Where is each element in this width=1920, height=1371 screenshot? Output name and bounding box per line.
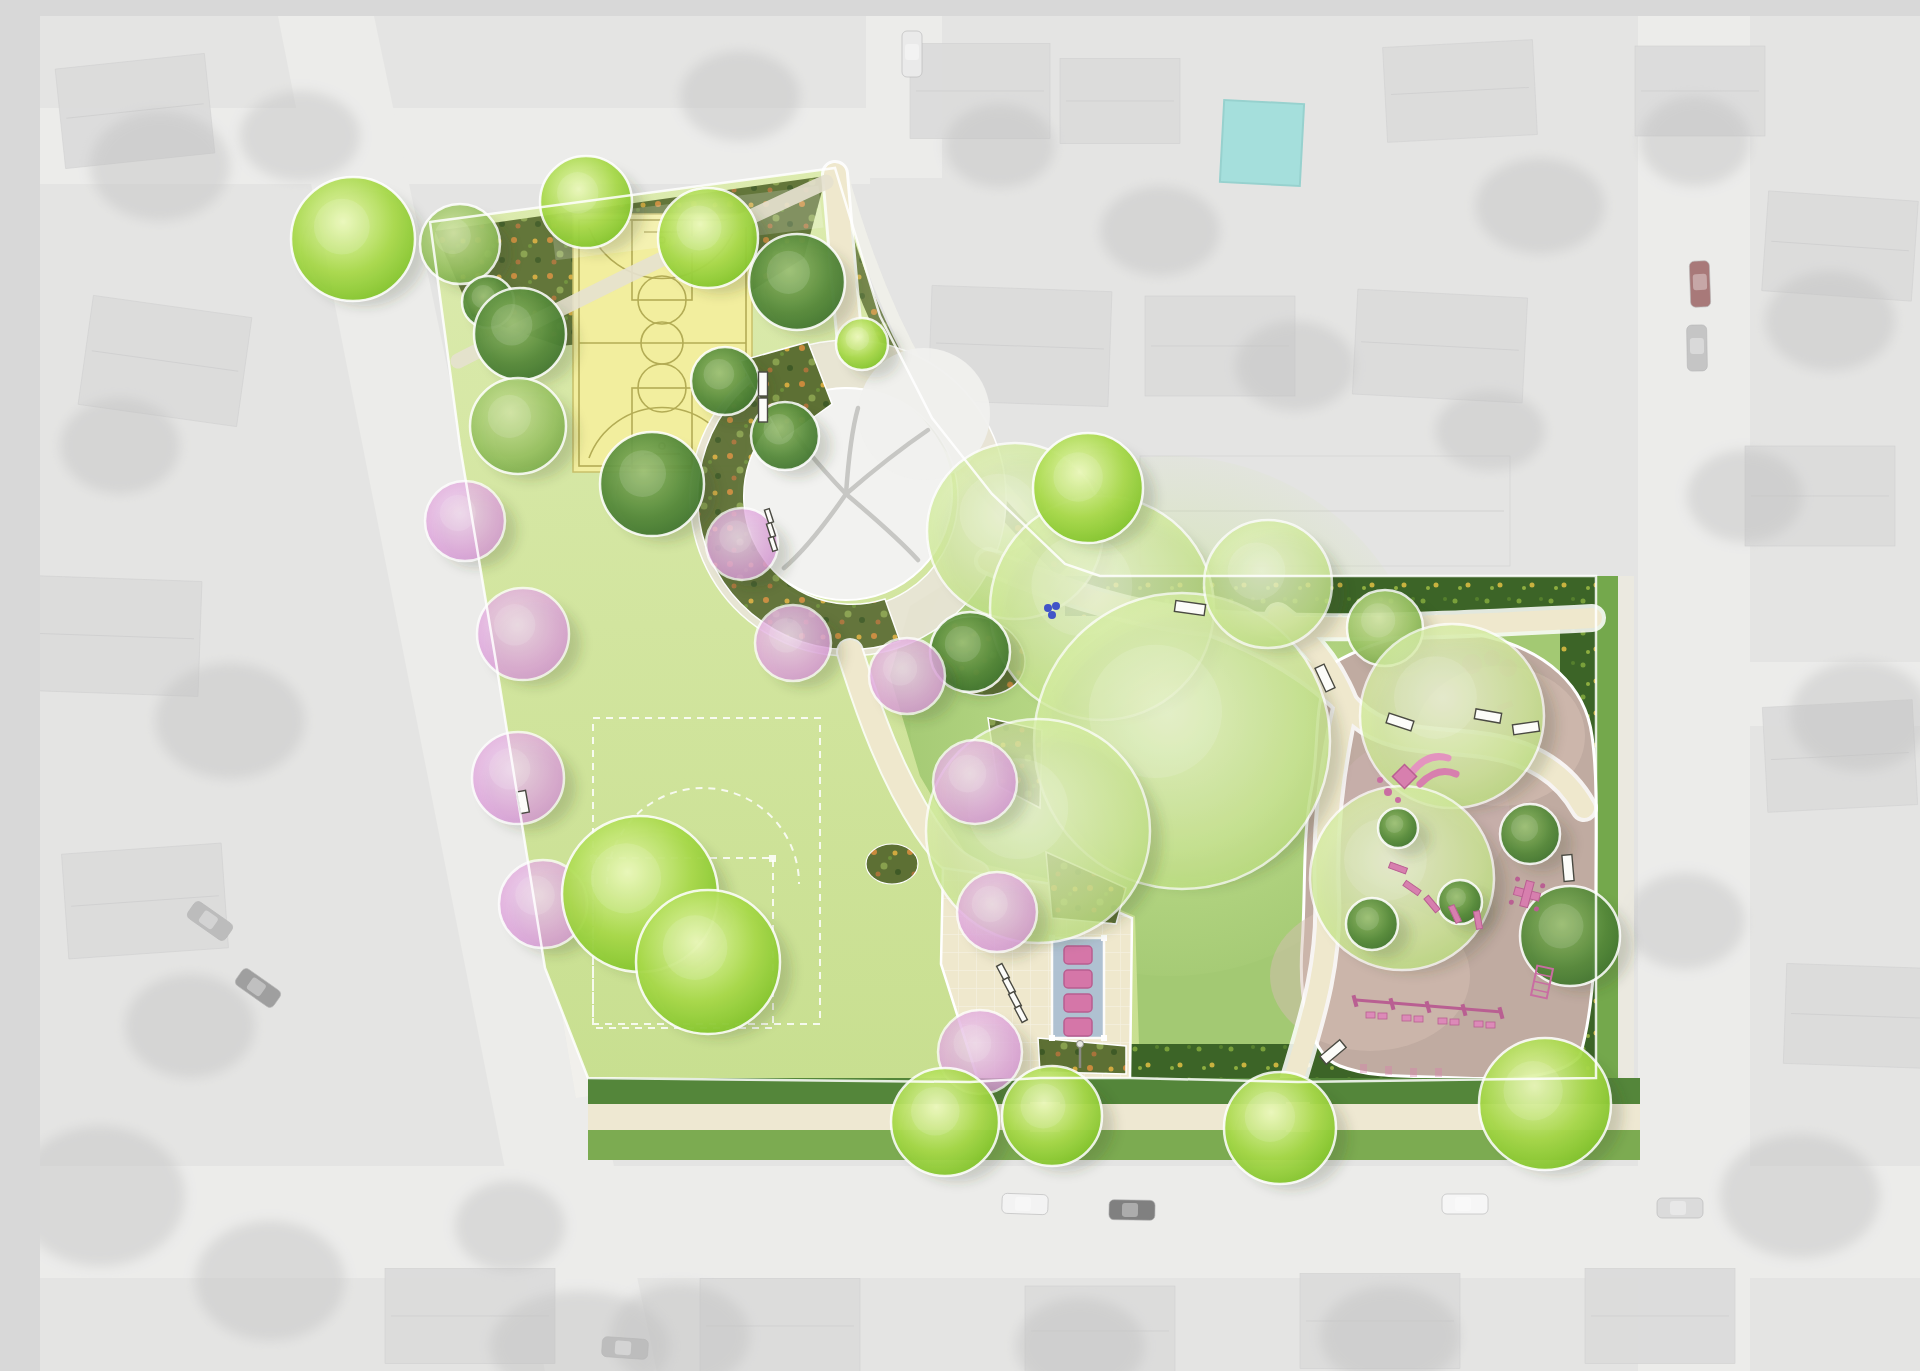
site-plan-canvas xyxy=(40,16,1920,1371)
bench xyxy=(759,398,768,422)
bench xyxy=(759,372,768,396)
picnic-shelter xyxy=(1049,935,1107,1041)
east-outer-sidewalk xyxy=(1618,576,1634,1078)
east-verge xyxy=(1596,576,1618,1078)
south-verge-outer xyxy=(588,1130,1640,1160)
bench xyxy=(1562,855,1574,882)
light-pole-head xyxy=(1077,1041,1084,1048)
path-side-bed xyxy=(866,844,918,884)
site-plan: Rendered park landscape master plan over… xyxy=(40,16,1920,1371)
